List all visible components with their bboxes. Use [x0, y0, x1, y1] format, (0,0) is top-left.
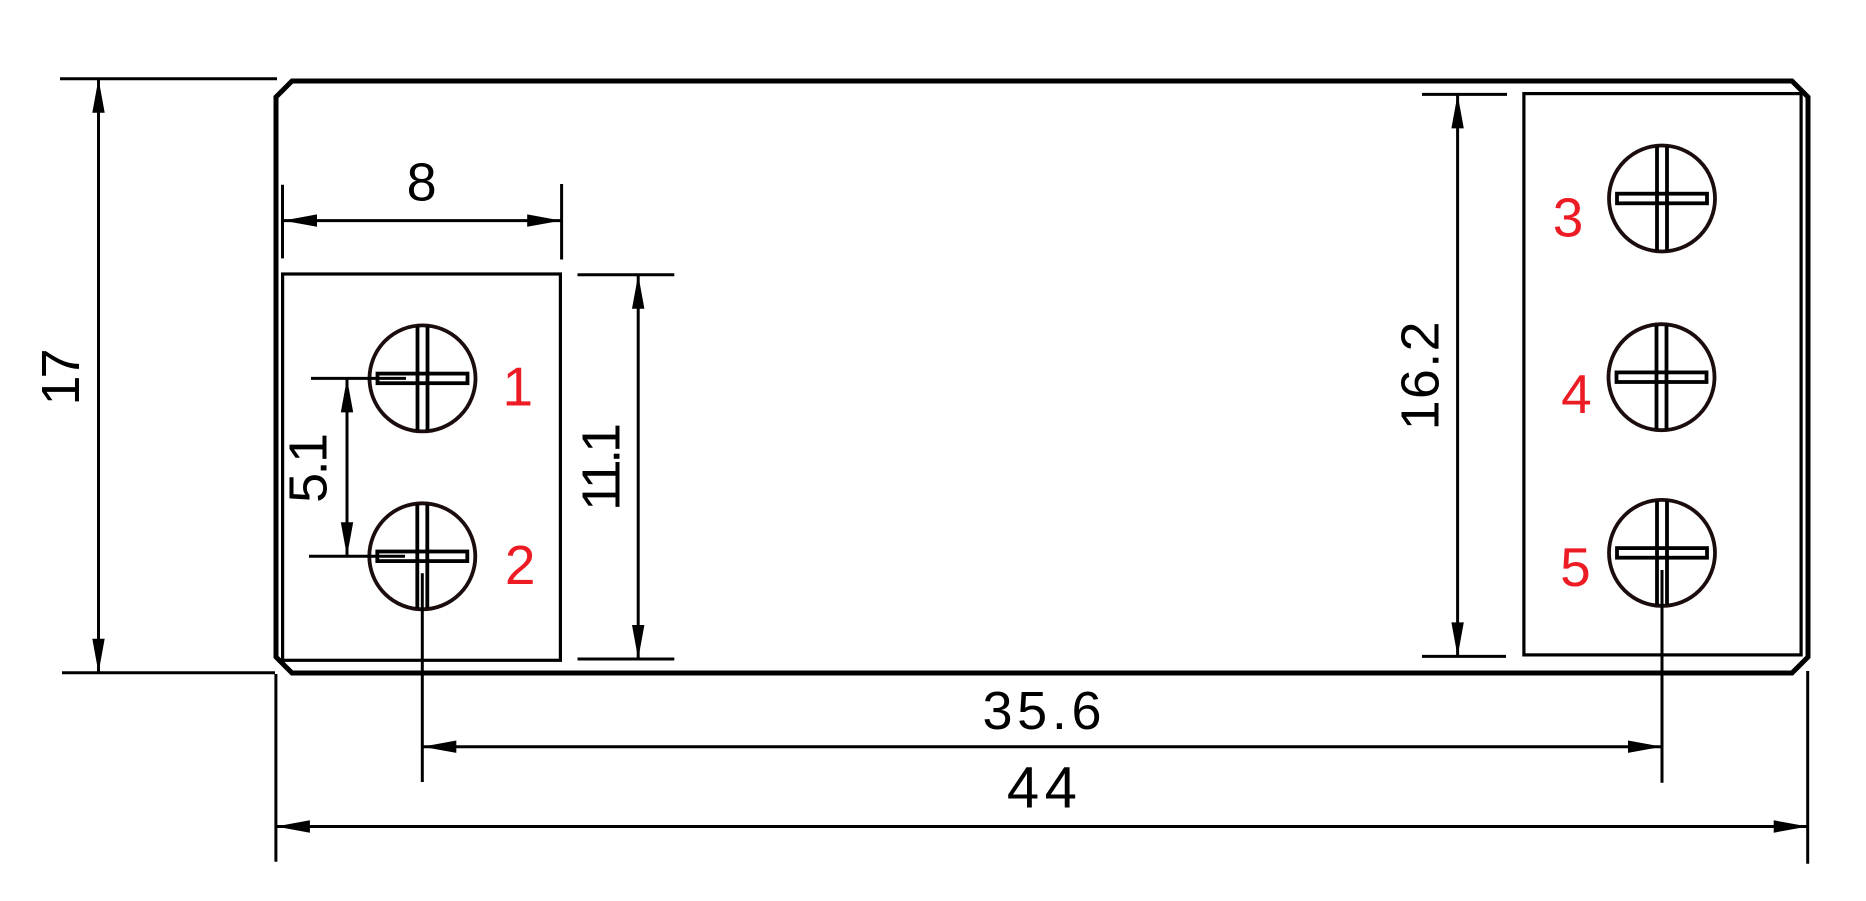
svg-text:1: 1 — [503, 356, 534, 418]
svg-text:5: 5 — [1560, 536, 1591, 598]
svg-text:11.1: 11.1 — [572, 423, 632, 511]
svg-text:35.6: 35.6 — [983, 681, 1102, 741]
svg-text:3: 3 — [1553, 187, 1584, 249]
svg-text:2: 2 — [505, 534, 536, 596]
svg-text:4: 4 — [1561, 363, 1592, 425]
svg-text:5.1: 5.1 — [278, 433, 338, 503]
svg-text:8: 8 — [407, 153, 437, 213]
svg-text:17: 17 — [31, 349, 91, 406]
svg-text:16.2: 16.2 — [1391, 321, 1451, 430]
